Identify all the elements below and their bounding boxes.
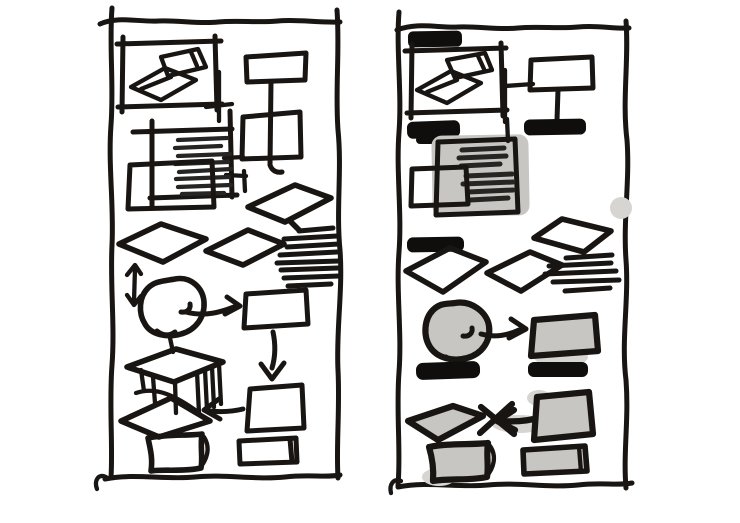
shaded-small-rectangle-sketch: [523, 446, 587, 474]
rectangle-sketch: [244, 290, 308, 328]
shaded-circle-sketch: [425, 303, 489, 361]
text-block-sketch: [128, 111, 246, 209]
label-bar-fill: [416, 361, 588, 380]
stand-base-bar-fill: [524, 118, 586, 135]
wireframe-sketch-drawing: [0, 0, 740, 523]
square-sketch: [247, 385, 304, 431]
arrow-down-icon: [261, 332, 284, 379]
bed-sketch: [117, 36, 222, 112]
small-rectangle-sketch: [239, 438, 297, 464]
shaded-diamond-sketch: [408, 406, 483, 440]
title-bar-fill: [408, 31, 462, 48]
sign-stand-sketch: [224, 53, 306, 172]
scribble-text-lines: [277, 228, 339, 286]
text-lines: [175, 138, 231, 194]
left-wireframe-panel: [96, 8, 341, 489]
pillow-icon: [161, 49, 206, 76]
shaded-square-sketch: [527, 390, 593, 440]
pillow-rectangle-sketch: [148, 434, 208, 471]
arrow-right-icon: [186, 297, 240, 314]
shaded-rectangle-sketch: [531, 315, 598, 367]
sketch-canvas: [0, 0, 740, 523]
arrow-left-icon: [204, 399, 243, 419]
sign-stand-sketch: [524, 57, 593, 136]
smudge-mark: [610, 197, 632, 219]
circle-sketch: [140, 279, 204, 336]
right-wireframe-panel: [390, 12, 632, 493]
shaded-pillow-rectangle-sketch: [422, 443, 494, 486]
bed-sketch: [405, 43, 507, 118]
